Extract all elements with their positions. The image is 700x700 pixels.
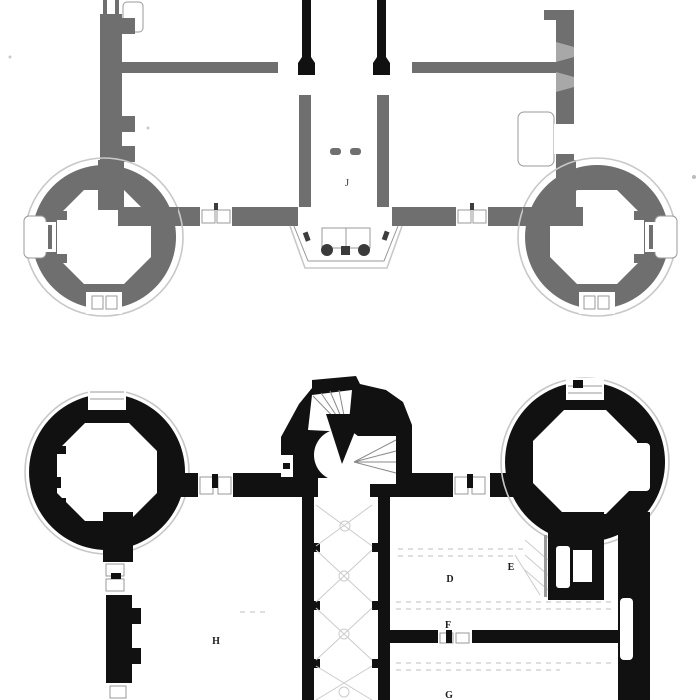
room-label-F: F [445,620,451,631]
north-door-left [200,474,231,494]
west-door [106,564,124,591]
tower-east-window [624,443,650,491]
west-door-south [110,686,126,698]
east-wing [240,512,650,700]
room-divider-wall [390,630,618,643]
central-stair-tower [281,376,412,498]
south-walls [118,203,564,226]
porch-pier [341,246,350,255]
southwest-round-tower [24,158,183,316]
north-door-right [455,474,485,494]
cross-partition-walls [122,62,558,73]
floor-plan-drawing: J [0,0,700,700]
scanned-floor-plan-sheet: J [0,0,700,700]
central-vestibule: J [299,95,389,207]
black-hall-walls [298,0,390,75]
door-opening-left [202,203,230,223]
ground-floor-plan: H D E F G [25,376,669,700]
entrance-porch [290,226,402,268]
room-label-H: H [212,636,220,647]
upper-floor-plan: J [9,0,697,316]
tower-window-opening [566,378,604,400]
east-window [620,598,633,660]
window-bay [518,112,554,166]
room-label-G: G [445,690,453,700]
east-exterior-wall-lower [618,512,650,700]
fireplace-nook [515,512,604,600]
porch-column [358,244,370,256]
vault-lines [316,505,372,700]
porch-column [321,244,333,256]
room-label-J: J [345,177,350,189]
door-opening-right [458,203,486,223]
room-label-E: E [508,562,515,573]
corridor [302,497,390,700]
room-labels: H D E F G [212,562,515,700]
southeast-round-tower [518,158,677,316]
room-label-D: D [446,574,453,585]
tower-window-opening [88,386,126,410]
